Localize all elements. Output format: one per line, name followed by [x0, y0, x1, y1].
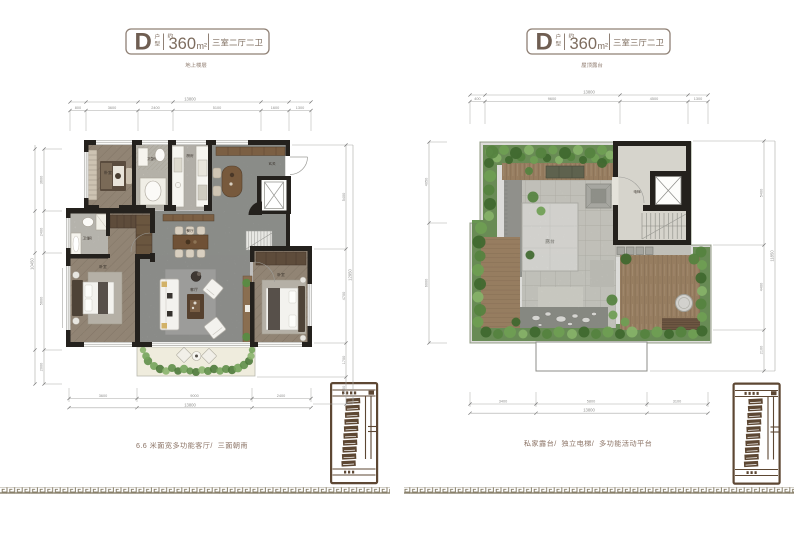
svg-text:1350: 1350: [342, 386, 346, 394]
svg-text:2000: 2000: [40, 363, 44, 371]
svg-text:10450: 10450: [29, 258, 34, 270]
svg-text:D: D: [536, 29, 553, 56]
svg-text:1300: 1300: [694, 97, 702, 101]
svg-text:3400: 3400: [499, 400, 507, 404]
svg-text:12950: 12950: [348, 269, 353, 281]
svg-text:5600: 5600: [40, 297, 44, 305]
svg-text:5800: 5800: [587, 400, 595, 404]
svg-text:9000: 9000: [190, 394, 198, 398]
svg-text:400: 400: [474, 97, 480, 101]
svg-text:2400: 2400: [277, 394, 285, 398]
svg-text:13800: 13800: [184, 97, 196, 102]
svg-text:13800: 13800: [583, 408, 595, 413]
svg-text:3600: 3600: [40, 176, 44, 184]
svg-text:13800: 13800: [583, 90, 595, 95]
svg-text:4500: 4500: [650, 97, 658, 101]
svg-text:m²: m²: [598, 41, 609, 51]
svg-text:2400: 2400: [40, 228, 44, 236]
svg-text:5100: 5100: [213, 106, 221, 110]
svg-text:4700: 4700: [342, 292, 346, 300]
svg-text:6000: 6000: [425, 279, 429, 287]
svg-text:3600: 3600: [108, 106, 116, 110]
svg-text:360: 360: [169, 35, 197, 53]
svg-text:11850: 11850: [769, 250, 774, 262]
svg-text:13800: 13800: [184, 402, 196, 407]
svg-text:2100: 2100: [760, 346, 764, 354]
svg-text:4050: 4050: [425, 178, 429, 186]
svg-text:800: 800: [75, 106, 81, 110]
svg-text:5400: 5400: [760, 189, 764, 197]
svg-text:D: D: [135, 29, 152, 56]
svg-text:m²: m²: [197, 41, 208, 51]
svg-text:1700: 1700: [342, 356, 346, 364]
svg-text:/: /: [592, 439, 594, 448]
svg-text:9600: 9600: [548, 97, 556, 101]
svg-text:360: 360: [570, 35, 598, 53]
svg-text:3600: 3600: [99, 394, 107, 398]
svg-text:2400: 2400: [151, 106, 159, 110]
svg-text:5400: 5400: [342, 193, 346, 201]
svg-text:4400: 4400: [760, 283, 764, 291]
svg-text:6.6: 6.6: [136, 441, 147, 450]
svg-text:生: 生: [86, 236, 90, 241]
svg-text:生: 生: [150, 156, 154, 161]
svg-text:1600: 1600: [271, 106, 279, 110]
svg-text:3100: 3100: [673, 400, 681, 404]
svg-text:/: /: [210, 441, 212, 450]
svg-text:1300: 1300: [296, 106, 304, 110]
svg-text:/: /: [554, 439, 556, 448]
